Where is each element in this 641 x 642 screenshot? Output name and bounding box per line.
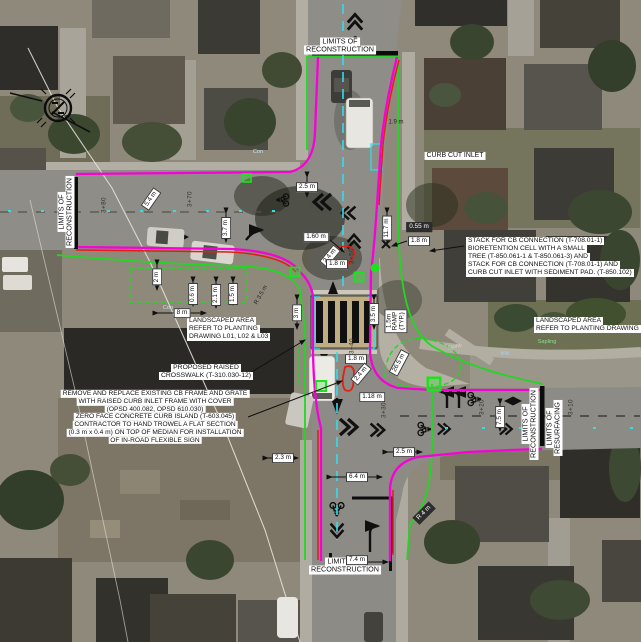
raised-crosswalk <box>311 290 377 354</box>
construction-plan-canvas: LIMITS OFRECONSTRUCTIONLIMITS OFRECONSTR… <box>0 0 641 642</box>
limit-bar-top <box>312 51 398 56</box>
plan-drawing <box>0 0 641 642</box>
tree-marker <box>371 264 380 273</box>
